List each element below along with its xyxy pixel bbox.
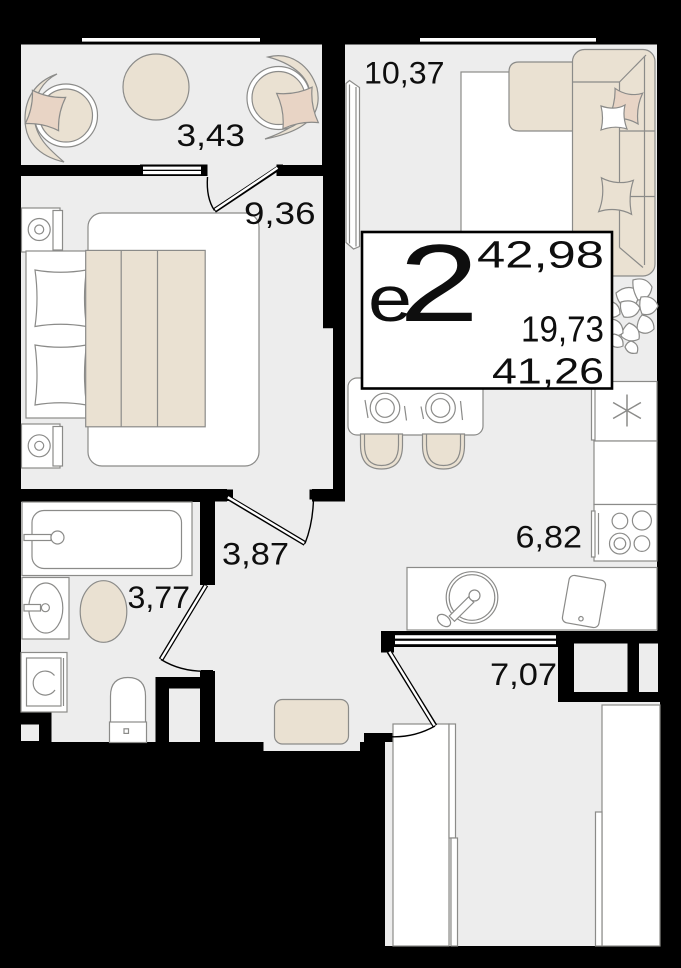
svg-text:10,37: 10,37 (364, 55, 445, 91)
svg-text:3,43: 3,43 (177, 117, 246, 153)
svg-text:3,87: 3,87 (222, 536, 289, 572)
svg-text:7,07: 7,07 (490, 656, 557, 692)
svg-text:42,98: 42,98 (477, 235, 604, 277)
svg-text:3,77: 3,77 (128, 579, 191, 615)
svg-text:9,36: 9,36 (244, 195, 316, 231)
svg-text:2: 2 (399, 222, 479, 345)
svg-text:6,82: 6,82 (516, 518, 583, 554)
svg-text:41,26: 41,26 (492, 351, 604, 392)
svg-text:19,73: 19,73 (521, 309, 604, 350)
